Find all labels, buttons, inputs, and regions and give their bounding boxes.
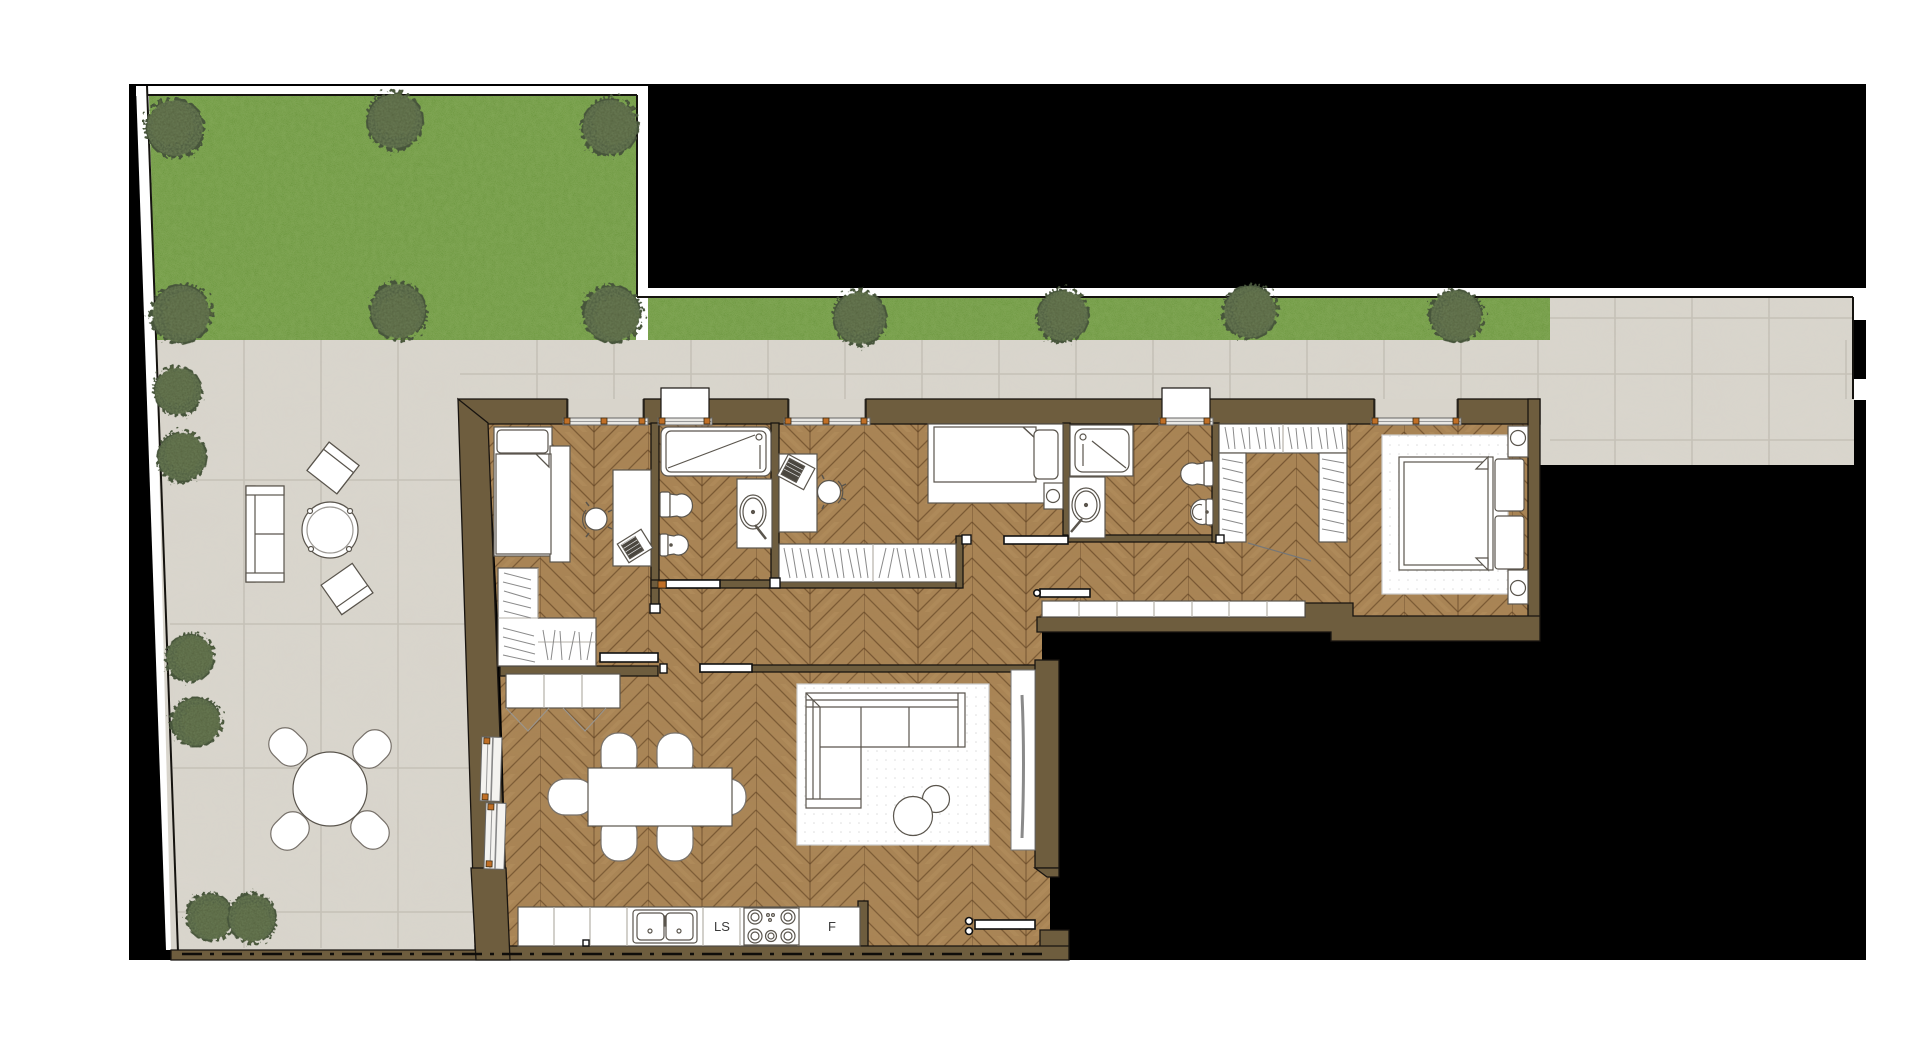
- svg-text:F: F: [828, 919, 836, 934]
- svg-text:LS: LS: [714, 919, 730, 934]
